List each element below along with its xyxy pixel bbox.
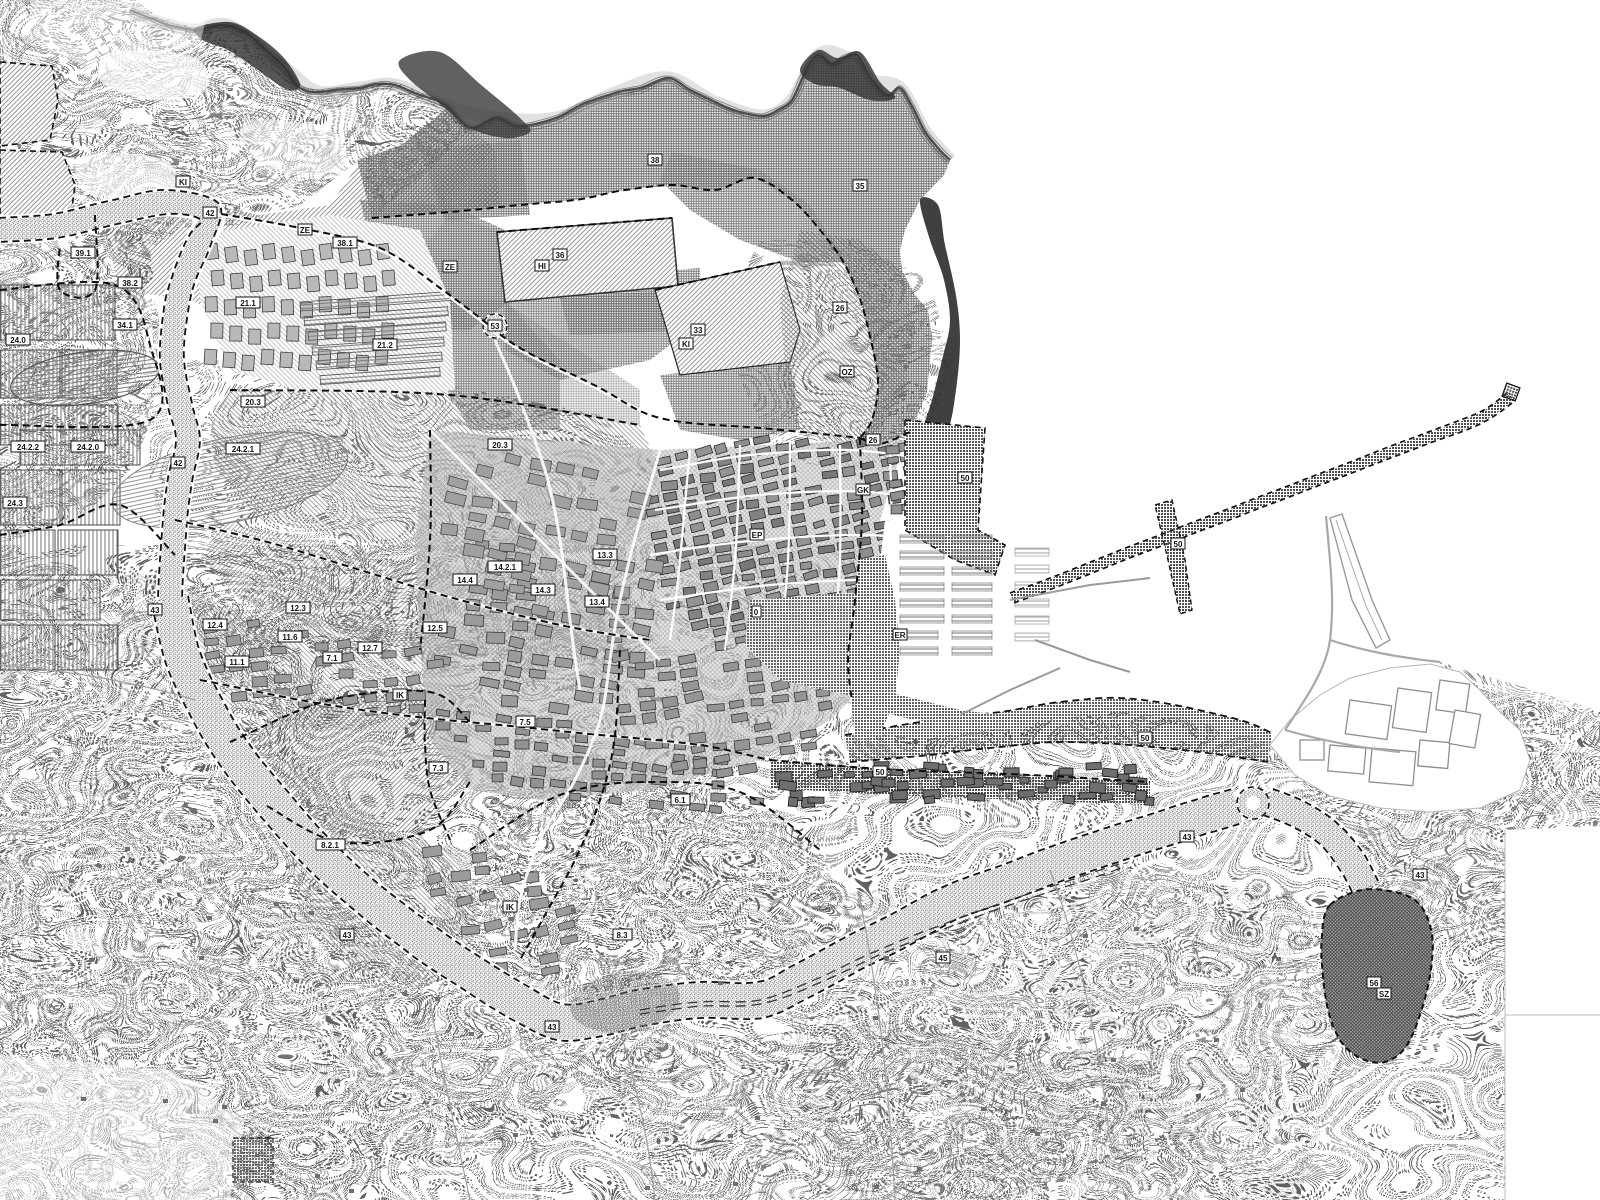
svg-text:ZE: ZE: [300, 226, 311, 235]
svg-text:11.1: 11.1: [229, 658, 245, 667]
svg-text:43: 43: [548, 1023, 557, 1032]
svg-text:HI: HI: [538, 262, 546, 271]
svg-text:OZ: OZ: [841, 368, 852, 377]
svg-text:24.3: 24.3: [7, 499, 23, 508]
svg-text:ZE: ZE: [445, 263, 456, 272]
svg-text:50: 50: [876, 768, 885, 777]
svg-text:33: 33: [694, 326, 703, 335]
svg-text:26: 26: [869, 436, 878, 445]
svg-text:26: 26: [836, 304, 845, 313]
svg-text:EP: EP: [752, 531, 763, 540]
svg-text:21.2: 21.2: [377, 341, 393, 350]
svg-text:8.2.1: 8.2.1: [321, 841, 339, 850]
svg-text:50: 50: [1174, 540, 1183, 549]
svg-text:20.3: 20.3: [245, 398, 261, 407]
svg-text:21.1: 21.1: [240, 299, 256, 308]
svg-text:ER: ER: [894, 631, 905, 640]
svg-text:KI: KI: [682, 340, 690, 349]
svg-text:45: 45: [939, 954, 948, 963]
svg-text:8.3: 8.3: [616, 931, 628, 940]
svg-text:53: 53: [491, 322, 500, 331]
svg-text:20.3: 20.3: [492, 441, 508, 450]
svg-text:43: 43: [1183, 833, 1192, 842]
svg-text:39.1: 39.1: [75, 249, 91, 258]
svg-text:43: 43: [1416, 871, 1425, 880]
svg-text:24.2.1: 24.2.1: [232, 445, 255, 454]
svg-text:24.0: 24.0: [10, 336, 26, 345]
svg-text:14.2.1: 14.2.1: [494, 563, 517, 572]
svg-text:13.4: 13.4: [589, 598, 605, 607]
svg-text:42: 42: [206, 209, 215, 218]
svg-text:11.6: 11.6: [282, 633, 298, 642]
svg-text:24.2.0: 24.2.0: [77, 443, 100, 452]
svg-text:38.1: 38.1: [337, 239, 353, 248]
svg-text:42: 42: [174, 459, 183, 468]
svg-text:24.2.2: 24.2.2: [17, 443, 40, 452]
svg-text:IK: IK: [396, 691, 404, 700]
svg-text:36: 36: [556, 251, 565, 260]
svg-text:12.3: 12.3: [290, 604, 306, 613]
svg-text:43: 43: [151, 606, 160, 615]
svg-text:38: 38: [651, 156, 660, 165]
svg-text:7.5: 7.5: [519, 718, 531, 727]
svg-text:12.4: 12.4: [207, 621, 223, 630]
svg-text:13.3: 13.3: [597, 551, 613, 560]
svg-text:7.1: 7.1: [326, 654, 338, 663]
svg-text:50: 50: [961, 474, 970, 483]
svg-text:IK: IK: [506, 903, 514, 912]
svg-text:12.5: 12.5: [427, 624, 443, 633]
svg-text:34.1: 34.1: [117, 321, 133, 330]
svg-text:43: 43: [343, 931, 352, 940]
svg-text:0: 0: [754, 608, 759, 617]
svg-text:GK: GK: [857, 486, 869, 495]
svg-text:38.2: 38.2: [122, 279, 138, 288]
svg-text:35: 35: [856, 182, 865, 191]
svg-text:56: 56: [1370, 979, 1379, 988]
svg-text:KI: KI: [179, 178, 187, 187]
svg-text:14.3: 14.3: [535, 586, 551, 595]
svg-text:7.3: 7.3: [432, 764, 444, 773]
svg-text:12.7: 12.7: [362, 644, 378, 653]
svg-text:6.1: 6.1: [674, 796, 686, 805]
svg-text:50: 50: [1141, 734, 1150, 743]
svg-text:SZ: SZ: [1379, 990, 1389, 999]
svg-text:14.4: 14.4: [457, 576, 473, 585]
